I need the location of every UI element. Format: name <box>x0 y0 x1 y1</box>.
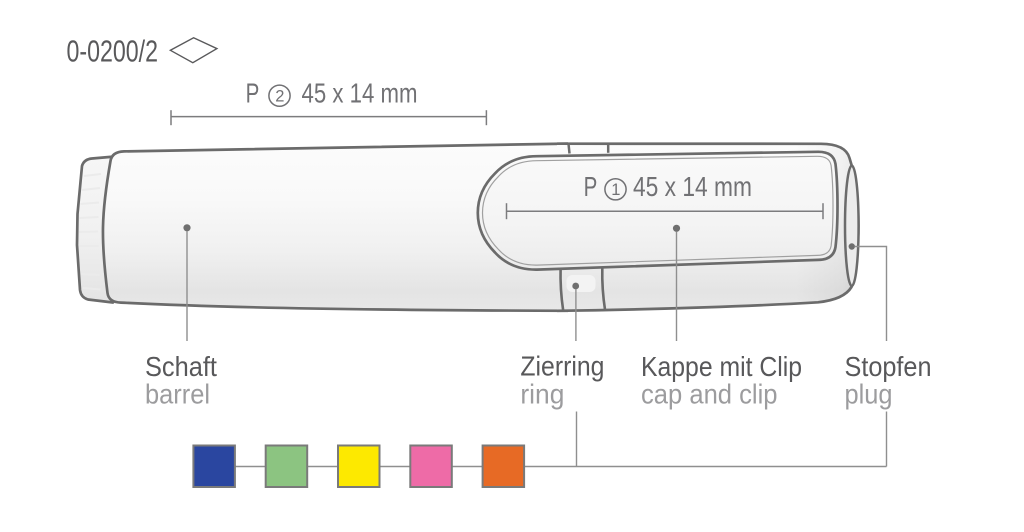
svg-text:ring: ring <box>520 379 564 410</box>
svg-text:P: P <box>584 171 598 202</box>
svg-text:cap and clip: cap and clip <box>641 379 778 410</box>
svg-text:1: 1 <box>611 181 620 199</box>
svg-text:Kappe mit Clip: Kappe mit Clip <box>641 351 802 382</box>
svg-text:P: P <box>246 77 260 108</box>
svg-text:45 x 14 mm: 45 x 14 mm <box>633 171 752 202</box>
svg-text:plug: plug <box>845 379 893 410</box>
svg-text:Schaft: Schaft <box>145 351 217 382</box>
svg-text:barrel: barrel <box>145 379 210 410</box>
svg-text:45 x 14 mm: 45 x 14 mm <box>302 77 418 108</box>
svg-text:Zierring: Zierring <box>520 351 604 382</box>
svg-text:2: 2 <box>275 88 284 106</box>
svg-text:0-0200/2: 0-0200/2 <box>67 33 159 68</box>
svg-text:Stopfen: Stopfen <box>845 351 932 382</box>
